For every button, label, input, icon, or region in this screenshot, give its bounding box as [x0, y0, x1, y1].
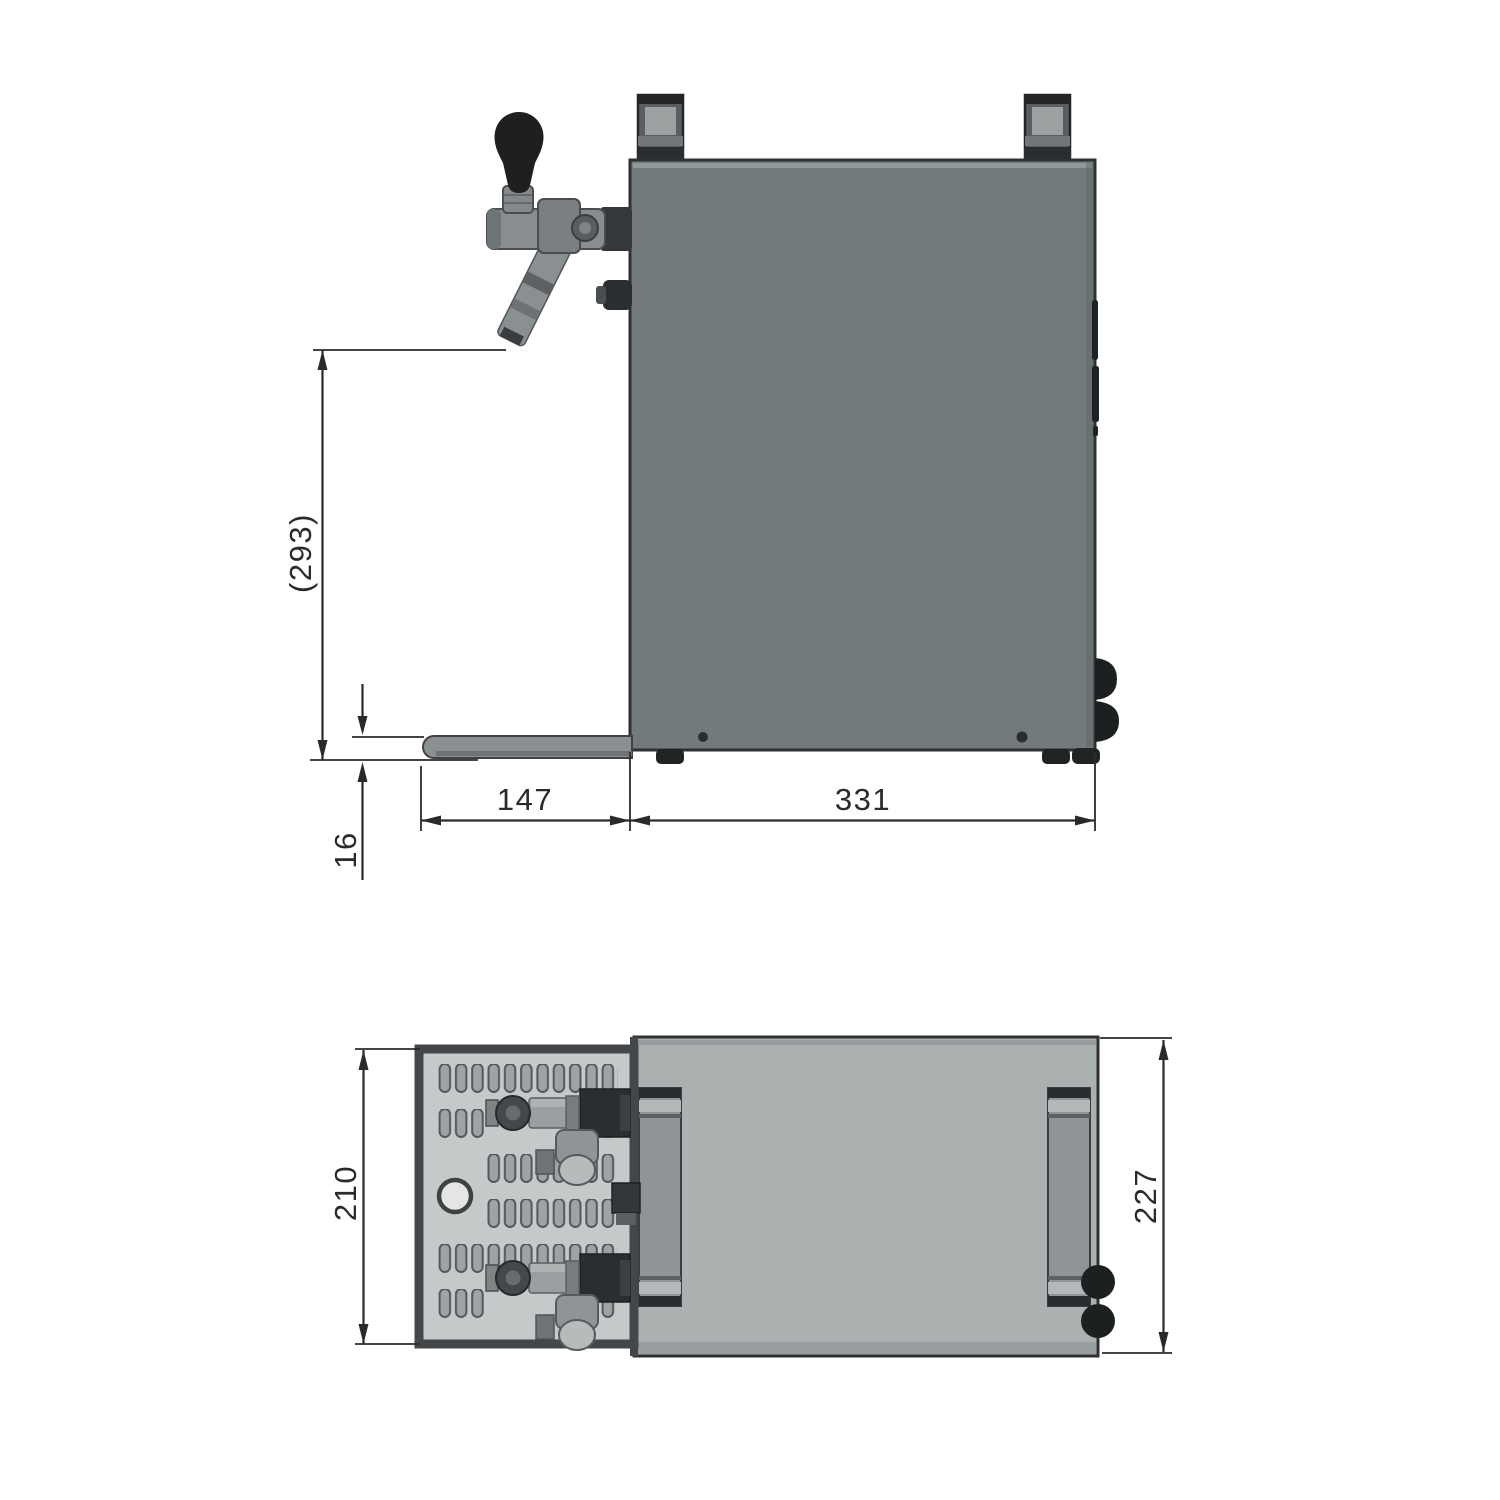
dim-label-housing-width: 227 [1128, 1168, 1163, 1224]
side-view-foot-left [656, 749, 684, 764]
top-view-housing [634, 1037, 1098, 1356]
top-view-housing-bottom-band [636, 1342, 1096, 1354]
faucet-body-cap [487, 209, 501, 249]
side-view-right-edge-fittings [1092, 300, 1099, 436]
drip-tray-drain-hole [439, 1180, 471, 1212]
dimension-tray-length: 147 [421, 752, 630, 831]
dimension-housing-length: 331 [630, 752, 1095, 831]
side-view-housing-top-highlight [633, 163, 1092, 168]
dim-label-tray-length: 147 [497, 782, 553, 817]
faucet-handle-knob [495, 112, 544, 193]
dim-label-tray-width: 210 [328, 1165, 363, 1221]
side-view-foot-right [1042, 749, 1070, 764]
top-view-right-knob-lower [1081, 1304, 1115, 1338]
side-view-left-handle [637, 95, 684, 162]
side-view-housing-right-shade [1086, 163, 1093, 747]
dimension-tray-width: 210 [328, 1049, 420, 1344]
top-view [419, 1037, 1115, 1356]
side-view [423, 95, 1119, 764]
dim-label-tray-thickness: 16 [328, 831, 363, 868]
dim-label-housing-length: 331 [835, 782, 891, 817]
housing-side-connector-stem [596, 286, 606, 304]
dimension-spout-height: (293) [283, 350, 506, 760]
dim-label-spout-height: (293) [283, 513, 318, 593]
top-view-right-knob-upper [1081, 1265, 1115, 1299]
faucet-nut-center [579, 222, 591, 234]
dimension-housing-width: 227 [1100, 1038, 1172, 1353]
dimension-tray-thickness: 16 [328, 684, 424, 880]
top-view-center-connector-cap [616, 1213, 636, 1225]
top-view-housing-top-shade [636, 1040, 1096, 1045]
faucet-assembly [487, 112, 632, 347]
technical-drawing-page: (293) 16 147 331 [0, 0, 1500, 1500]
side-view-housing [630, 160, 1095, 750]
side-view-screw-right [1017, 732, 1028, 743]
side-view-right-knobs [1095, 658, 1119, 742]
side-view-screw-left [698, 732, 708, 742]
top-view-center-connector [612, 1183, 640, 1213]
housing-side-connector [603, 280, 632, 310]
side-view-right-handle [1024, 95, 1071, 162]
top-view-left-handle-rail [639, 1088, 681, 1306]
side-view-drip-tray-shade [436, 751, 632, 756]
drawing-svg: (293) 16 147 331 [0, 0, 1500, 1500]
